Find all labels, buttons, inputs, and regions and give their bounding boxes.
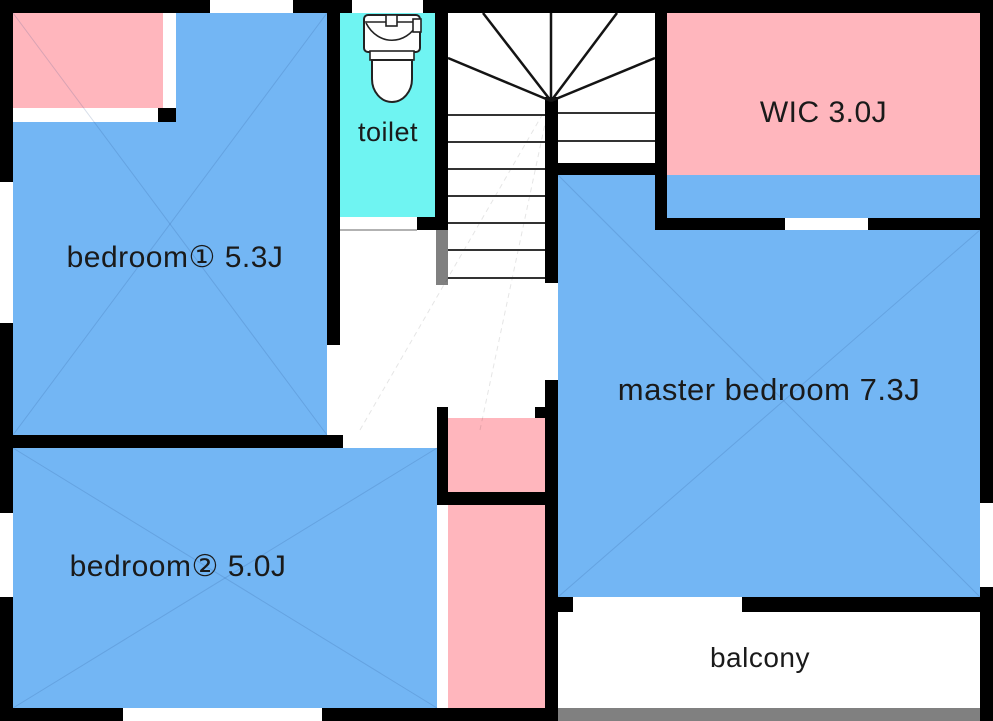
wall-stair-center bbox=[545, 97, 558, 283]
hall-pocket-door bbox=[436, 230, 448, 285]
window-top-bedroom1 bbox=[210, 0, 293, 13]
closet-bedroom1-area bbox=[13, 13, 163, 108]
wall-right bbox=[980, 0, 993, 721]
master-bedroom-label: master bedroom 7.3J bbox=[558, 368, 980, 412]
wall-master-top-left bbox=[558, 163, 667, 175]
wall-closets-divider bbox=[437, 492, 558, 505]
stair-winder-fan bbox=[448, 13, 655, 101]
balcony-label: balcony bbox=[558, 638, 962, 678]
closet-bedroom1-corner-post bbox=[158, 108, 176, 122]
stair-treads-left bbox=[448, 115, 545, 278]
stair-treads-right bbox=[558, 113, 655, 141]
balcony-railing bbox=[558, 708, 980, 721]
wall-wic-left bbox=[655, 13, 667, 230]
wall-bedrooms-divider bbox=[0, 435, 343, 448]
wall-closet-master bbox=[545, 380, 558, 721]
window-top-toilet bbox=[352, 0, 423, 13]
bedroom2-label: bedroom② 5.0J bbox=[13, 545, 343, 587]
bedroom1-label: bedroom① 5.3J bbox=[13, 236, 337, 278]
wall-toilet-bottom-stub bbox=[417, 217, 448, 230]
closet-bedroom1-door-opening bbox=[13, 108, 158, 122]
wall-closet-hall-left bbox=[437, 407, 448, 505]
floor-plan: bedroom① 5.3J bedroom② 5.0J toilet WIC 3… bbox=[0, 0, 993, 721]
closet-hall-area bbox=[448, 418, 545, 492]
window-left-bedroom2 bbox=[0, 513, 13, 597]
door-balcony-sliding bbox=[573, 597, 742, 612]
door-wic bbox=[785, 218, 868, 230]
wall-toilet-right bbox=[435, 13, 448, 230]
closet-bedroom1-side-opening bbox=[163, 13, 176, 108]
wic-label: WIC 3.0J bbox=[667, 92, 980, 134]
wall-top bbox=[0, 0, 993, 13]
wall-left bbox=[0, 0, 13, 721]
window-right-master bbox=[980, 503, 993, 587]
toilet-label: toilet bbox=[340, 114, 436, 150]
wall-bedroom1-right bbox=[327, 13, 340, 345]
window-bottom-bedroom2 bbox=[123, 708, 322, 721]
closet-bedroom2-area bbox=[448, 505, 545, 708]
window-left-bedroom1 bbox=[0, 182, 13, 323]
